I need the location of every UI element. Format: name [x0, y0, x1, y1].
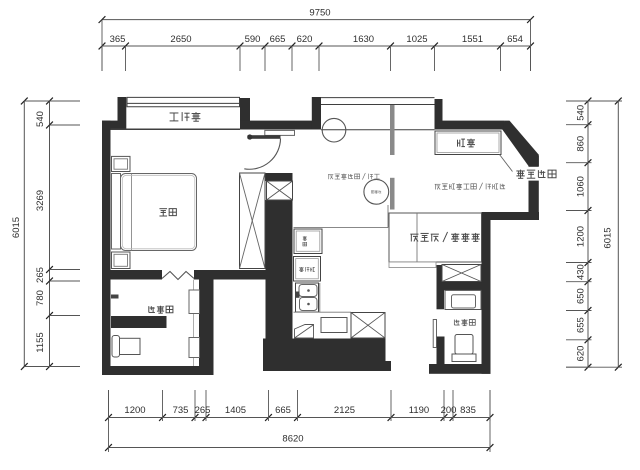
svg-text:1200: 1200: [576, 226, 587, 247]
svg-text:665: 665: [270, 34, 286, 45]
svg-text:365: 365: [110, 34, 126, 45]
svg-text:430: 430: [576, 264, 587, 280]
svg-text:655: 655: [576, 317, 587, 333]
svg-text:620: 620: [576, 346, 587, 362]
svg-text:1200: 1200: [124, 405, 145, 416]
svg-text:3269: 3269: [35, 190, 46, 211]
svg-text:1025: 1025: [406, 34, 427, 45]
svg-text:200: 200: [441, 405, 457, 416]
svg-text:590: 590: [245, 34, 261, 45]
svg-text:735: 735: [173, 405, 189, 416]
svg-text:265: 265: [35, 267, 46, 283]
svg-text:1060: 1060: [576, 176, 587, 197]
svg-text:265: 265: [195, 405, 211, 416]
svg-text:2650: 2650: [170, 34, 191, 45]
svg-text:2125: 2125: [334, 405, 355, 416]
svg-text:1155: 1155: [35, 332, 46, 352]
svg-text:620: 620: [297, 34, 313, 45]
svg-text:835: 835: [460, 405, 476, 416]
svg-text:6015: 6015: [11, 217, 22, 238]
svg-text:860: 860: [576, 136, 587, 152]
svg-text:1405: 1405: [225, 405, 246, 416]
svg-text:8620: 8620: [282, 434, 303, 445]
svg-text:1630: 1630: [353, 34, 374, 45]
svg-text:665: 665: [275, 405, 291, 416]
svg-text:540: 540: [576, 105, 587, 121]
svg-text:780: 780: [35, 290, 46, 306]
svg-text:9750: 9750: [309, 8, 330, 19]
svg-text:540: 540: [35, 111, 46, 127]
svg-text:654: 654: [507, 34, 523, 45]
svg-text:6015: 6015: [603, 227, 614, 248]
svg-text:1190: 1190: [409, 405, 429, 416]
svg-text:1551: 1551: [462, 34, 483, 45]
svg-text:650: 650: [576, 288, 587, 304]
